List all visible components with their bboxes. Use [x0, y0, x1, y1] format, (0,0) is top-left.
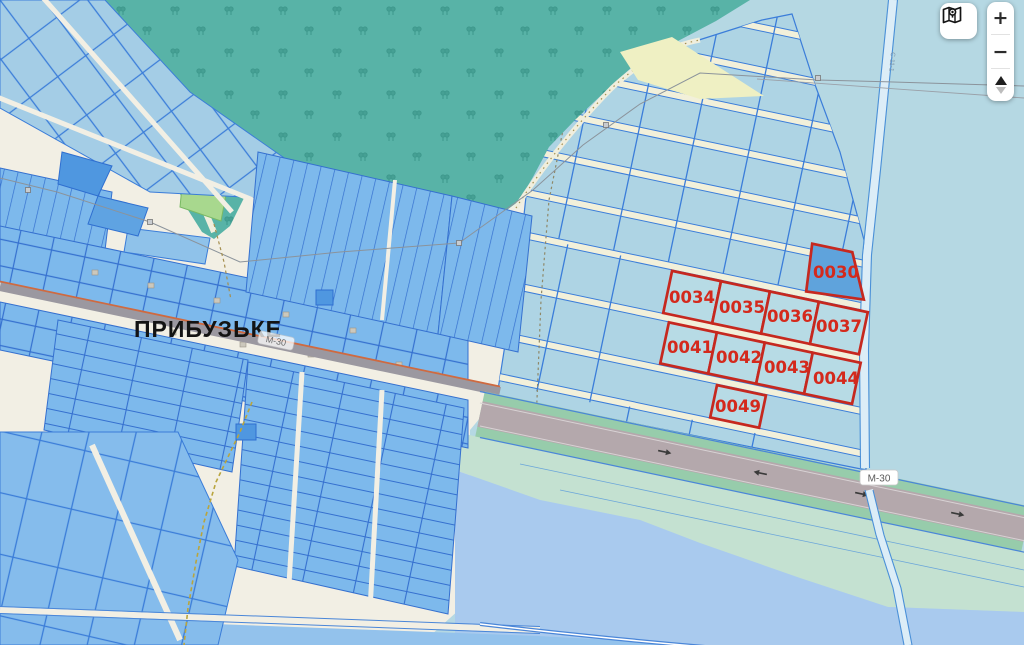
- parcel-number-label: 0034: [669, 288, 715, 307]
- map-canvas[interactable]: С-11-1 0030 0034 0035 0036 0037 0041 004…: [0, 0, 1024, 645]
- zoom-out-button[interactable]: −: [987, 35, 1014, 67]
- parcel-number-label: 0043: [764, 358, 810, 377]
- parcel-number-label: 0044: [813, 369, 859, 388]
- parcel-number-label: 0030: [813, 263, 859, 282]
- parcel-number-label: 0037: [816, 317, 862, 336]
- map-legend-button[interactable]: [940, 3, 977, 39]
- parcel-number-label: 0049: [715, 397, 761, 416]
- south-arrow-icon: [996, 87, 1006, 94]
- zoom-in-button[interactable]: +: [987, 2, 1014, 34]
- highway-shield: М-30: [860, 470, 898, 485]
- parcel-number-label: 0042: [716, 348, 762, 367]
- map-legend-icon: [940, 3, 964, 27]
- map-viewport[interactable]: С-11-1 0030 0034 0035 0036 0037 0041 004…: [0, 0, 1024, 645]
- parcel-number-label: 0036: [767, 307, 813, 326]
- map-zoom-controls: + −: [987, 2, 1014, 101]
- parcel-number-label: 0035: [719, 298, 765, 317]
- north-arrow-icon: [995, 76, 1007, 85]
- svg-text:М-30: М-30: [868, 474, 891, 485]
- compass-reset-north-button[interactable]: [987, 69, 1014, 101]
- parcel-number-label: 0041: [667, 338, 713, 357]
